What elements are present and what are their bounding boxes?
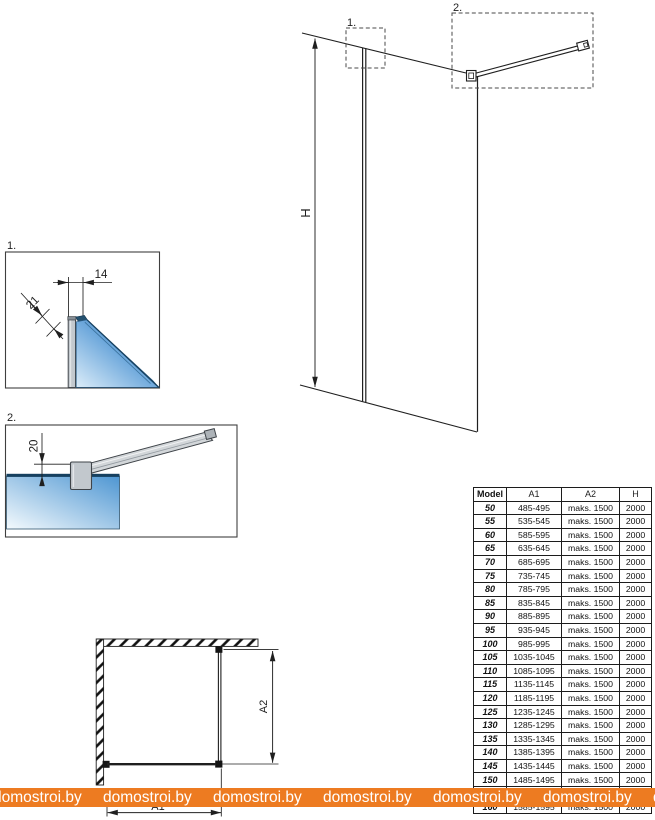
- model-cell: 85: [474, 596, 507, 610]
- watermark-text: domostroi.by: [0, 788, 103, 807]
- watermark-text: domostroi.by: [543, 788, 653, 807]
- bar-end-cap: [577, 40, 590, 51]
- size-table-header-a2: A2: [562, 488, 620, 502]
- size-cell: 2000: [620, 623, 652, 637]
- glass-bracket: [467, 71, 477, 82]
- glass-top-edge-band: [7, 474, 120, 477]
- size-cell: 2000: [620, 610, 652, 624]
- table-row: 95935-945maks. 15002000: [474, 623, 652, 637]
- model-cell: 145: [474, 759, 507, 773]
- size-cell: maks. 1500: [562, 664, 620, 678]
- size-cell: 2000: [620, 719, 652, 733]
- model-cell: 90: [474, 610, 507, 624]
- table-row: 1201185-1195maks. 15002000: [474, 691, 652, 705]
- glass-panel-plan: [218, 650, 221, 762]
- size-cell: 2000: [620, 637, 652, 651]
- size-cell: 735-745: [507, 569, 562, 583]
- elevation-callout-1-label: 1.: [347, 17, 356, 29]
- size-cell: maks. 1500: [562, 528, 620, 542]
- size-cell: maks. 1500: [562, 705, 620, 719]
- size-cell: 685-695: [507, 555, 562, 569]
- model-cell: 105: [474, 651, 507, 665]
- size-cell: 2000: [620, 746, 652, 760]
- model-cell: 130: [474, 719, 507, 733]
- size-cell: 535-545: [507, 515, 562, 529]
- size-cell: 1185-1195: [507, 691, 562, 705]
- model-cell: 120: [474, 691, 507, 705]
- watermark-row: domostroi.bydomostroi.bydomostroi.bydomo…: [0, 788, 655, 807]
- model-cell: 125: [474, 705, 507, 719]
- size-cell: 1335-1345: [507, 732, 562, 746]
- size-cell: 635-645: [507, 542, 562, 556]
- size-cell: maks. 1500: [562, 651, 620, 665]
- size-cell: maks. 1500: [562, 623, 620, 637]
- table-row: 1301285-1295maks. 15002000: [474, 719, 652, 733]
- model-cell: 95: [474, 623, 507, 637]
- dim-14-label: 14: [95, 269, 108, 281]
- size-cell: 1435-1445: [507, 759, 562, 773]
- detail-2-label: 2.: [7, 412, 16, 424]
- table-row: 70685-695maks. 15002000: [474, 555, 652, 569]
- a2-extension-lines: [222, 650, 279, 764]
- size-table: ModelA1A2H 50485-495maks. 1500200055535-…: [473, 487, 652, 814]
- model-cell: 60: [474, 528, 507, 542]
- size-cell: 835-845: [507, 596, 562, 610]
- table-row: 85835-845maks. 15002000: [474, 596, 652, 610]
- table-row: 100985-995maks. 15002000: [474, 637, 652, 651]
- panel-wall-fixing: [215, 646, 222, 652]
- size-cell: 2000: [620, 773, 652, 787]
- size-cell: 2000: [620, 651, 652, 665]
- model-cell: 140: [474, 746, 507, 760]
- size-cell: maks. 1500: [562, 583, 620, 597]
- size-table-header-model: Model: [474, 488, 507, 502]
- size-cell: maks. 1500: [562, 515, 620, 529]
- size-cell: 985-995: [507, 637, 562, 651]
- size-cell: 1085-1095: [507, 664, 562, 678]
- size-cell: 2000: [620, 528, 652, 542]
- glass-bottom-edge: [300, 385, 477, 432]
- size-cell: 935-945: [507, 623, 562, 637]
- table-row: 1151135-1145maks. 15002000: [474, 678, 652, 692]
- dim-21-arrow-b: [54, 329, 60, 335]
- glass-pane-section: [76, 320, 159, 388]
- bar-highlight: [86, 435, 208, 468]
- size-cell: 2000: [620, 555, 652, 569]
- size-cell: 1285-1295: [507, 719, 562, 733]
- table-row: 1251235-1245maks. 15002000: [474, 705, 652, 719]
- top-wall-hatch: [97, 639, 258, 646]
- size-cell: 1235-1245: [507, 705, 562, 719]
- detail-1-label: 1.: [7, 240, 16, 252]
- size-cell: 2000: [620, 759, 652, 773]
- a2-dimension-label: A2: [258, 700, 270, 713]
- profile-top-cap: [68, 317, 76, 320]
- model-cell: 135: [474, 732, 507, 746]
- size-cell: maks. 1500: [562, 610, 620, 624]
- table-row: 50485-495maks. 15002000: [474, 501, 652, 515]
- size-cell: 885-895: [507, 610, 562, 624]
- size-cell: 485-495: [507, 501, 562, 515]
- model-cell: 75: [474, 569, 507, 583]
- size-table-header-row: ModelA1A2H: [474, 488, 652, 502]
- model-cell: 70: [474, 555, 507, 569]
- size-table-body: 50485-495maks. 1500200055535-545maks. 15…: [474, 501, 652, 814]
- table-row: 90885-895maks. 15002000: [474, 610, 652, 624]
- size-cell: 2000: [620, 678, 652, 692]
- height-dimension-label: H: [298, 208, 313, 217]
- model-cell: 55: [474, 515, 507, 529]
- size-cell: 2000: [620, 732, 652, 746]
- size-cell: maks. 1500: [562, 678, 620, 692]
- model-cell: 80: [474, 583, 507, 597]
- detail-1-view: 1. 14 21: [6, 240, 160, 388]
- elevation-view: [300, 13, 593, 432]
- watermark-bar: domostroi.bydomostroi.bydomostroi.bydomo…: [0, 788, 655, 807]
- bar-shade: [88, 438, 210, 471]
- size-cell: 2000: [620, 542, 652, 556]
- bar-wall-cap: [204, 429, 216, 440]
- table-row: 75735-745maks. 15002000: [474, 569, 652, 583]
- size-cell: 785-795: [507, 583, 562, 597]
- size-cell: maks. 1500: [562, 596, 620, 610]
- detail-2-view: 2. 20: [6, 412, 238, 537]
- size-cell: maks. 1500: [562, 746, 620, 760]
- size-cell: 2000: [620, 569, 652, 583]
- size-cell: 2000: [620, 691, 652, 705]
- size-cell: maks. 1500: [562, 501, 620, 515]
- model-cell: 110: [474, 664, 507, 678]
- size-cell: 2000: [620, 705, 652, 719]
- size-table-head: ModelA1A2H: [474, 488, 652, 502]
- size-cell: maks. 1500: [562, 542, 620, 556]
- size-cell: maks. 1500: [562, 732, 620, 746]
- table-row: 1401385-1395maks. 15002000: [474, 746, 652, 760]
- table-row: 55535-545maks. 15002000: [474, 515, 652, 529]
- size-cell: 2000: [620, 596, 652, 610]
- table-row: 1501485-1495maks. 15002000: [474, 773, 652, 787]
- size-cell: 2000: [620, 664, 652, 678]
- size-table-header-a1: A1: [507, 488, 562, 502]
- elevation-callout-2-label: 2.: [453, 2, 462, 14]
- table-row: 1351335-1345maks. 15002000: [474, 732, 652, 746]
- table-row: 1051035-1045maks. 15002000: [474, 651, 652, 665]
- watermark-text: domostroi.by: [103, 788, 213, 807]
- model-cell: 100: [474, 637, 507, 651]
- size-cell: 2000: [620, 515, 652, 529]
- glass-top-edge: [302, 33, 466, 73]
- support-bar: [475, 45, 582, 77]
- table-row: 1101085-1095maks. 15002000: [474, 664, 652, 678]
- model-cell: 50: [474, 501, 507, 515]
- size-cell: maks. 1500: [562, 719, 620, 733]
- size-cell: 2000: [620, 501, 652, 515]
- size-cell: 1035-1045: [507, 651, 562, 665]
- wall-profile: [363, 48, 366, 403]
- size-cell: maks. 1500: [562, 759, 620, 773]
- size-cell: 1485-1495: [507, 773, 562, 787]
- size-table-header-h: H: [620, 488, 652, 502]
- model-cell: 150: [474, 773, 507, 787]
- size-cell: maks. 1500: [562, 691, 620, 705]
- table-row: 80785-795maks. 15002000: [474, 583, 652, 597]
- size-cell: 1135-1145: [507, 678, 562, 692]
- table-row: 65635-645maks. 15002000: [474, 542, 652, 556]
- model-cell: 115: [474, 678, 507, 692]
- size-cell: maks. 1500: [562, 569, 620, 583]
- size-cell: maks. 1500: [562, 637, 620, 651]
- table-row: 1451435-1445maks. 15002000: [474, 759, 652, 773]
- watermark-text: domostroi.by: [213, 788, 323, 807]
- watermark-text: domostroi.by: [433, 788, 543, 807]
- size-cell: maks. 1500: [562, 555, 620, 569]
- drawing-sheet: 1. 2. H 1. 14 21 2.: [0, 0, 655, 820]
- glass-pane-top: [7, 476, 120, 529]
- size-cell: 1385-1395: [507, 746, 562, 760]
- side-wall-hatch: [96, 639, 103, 785]
- wall-profile-section: [68, 318, 75, 388]
- size-cell: 2000: [620, 583, 652, 597]
- dim-21-label: 21: [24, 294, 42, 312]
- dim-14-extension-lines: [69, 277, 84, 318]
- watermark-text: domostroi.by: [323, 788, 433, 807]
- size-cell: 585-595: [507, 528, 562, 542]
- size-cell: maks. 1500: [562, 773, 620, 787]
- panel-end-fixing: [215, 761, 222, 768]
- dim-20-label: 20: [29, 440, 41, 453]
- model-cell: 65: [474, 542, 507, 556]
- table-row: 60585-595maks. 15002000: [474, 528, 652, 542]
